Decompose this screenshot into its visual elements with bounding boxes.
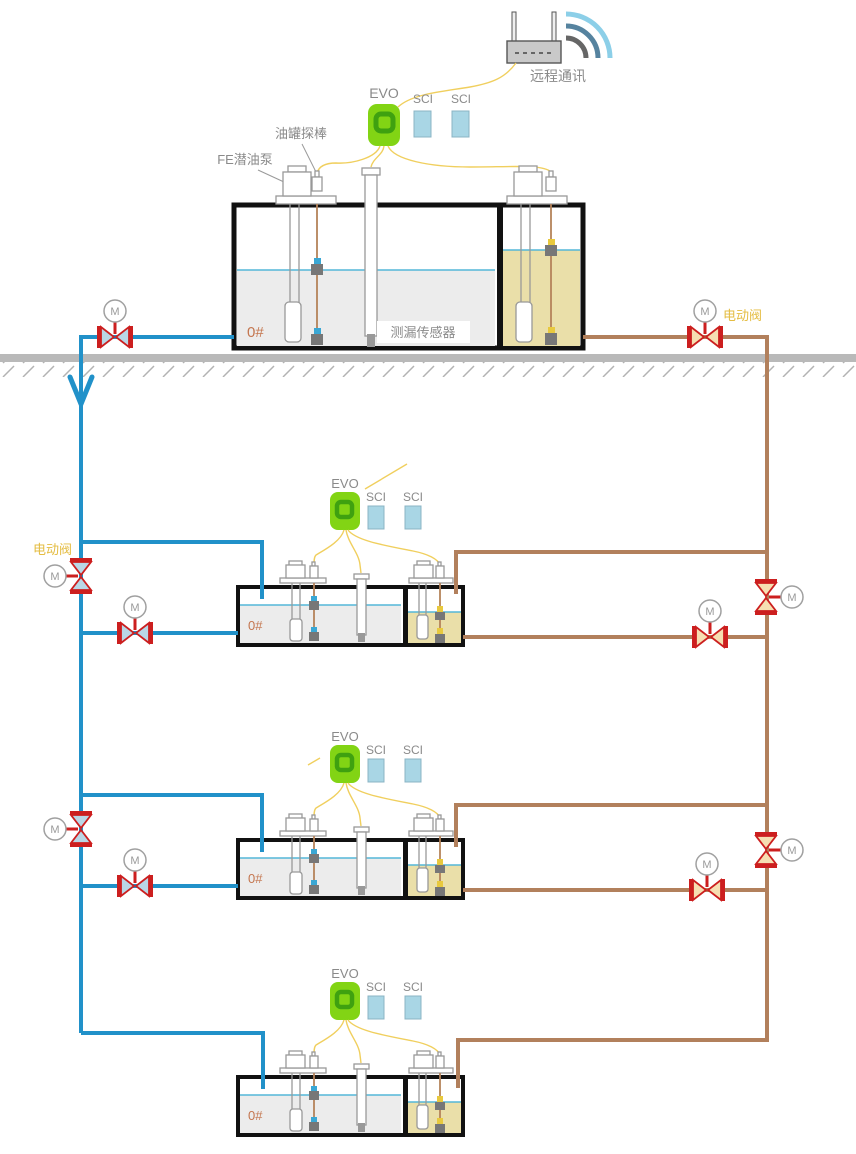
- sci-label: SCI: [451, 92, 471, 106]
- flange: [507, 196, 567, 204]
- sci-module: [452, 111, 469, 137]
- return-branch: [456, 552, 767, 594]
- probe-pin: [549, 171, 553, 177]
- motor-valve: [755, 832, 803, 868]
- float-cap: [314, 328, 321, 334]
- ground-line: [0, 354, 856, 362]
- router-antenna: [552, 12, 556, 42]
- wifi-icon: [566, 14, 610, 58]
- fe-pump-label: FE潜油泵: [217, 152, 273, 167]
- motor-valve: [97, 300, 133, 348]
- submersible-pump: [516, 302, 532, 342]
- sci-label: SCI: [413, 92, 433, 106]
- fuel-grade-label: 0#: [247, 324, 264, 341]
- tank-probe-label: 油罐探棒: [275, 126, 327, 141]
- schematic-canvas: M EVO SCI SCI: [0, 0, 856, 1154]
- pump-head: [283, 172, 311, 196]
- ground: [0, 354, 856, 377]
- tank-group-2: [238, 476, 463, 645]
- supply-branch: [81, 1033, 263, 1089]
- tank-group-3: [238, 729, 463, 898]
- flange: [276, 196, 336, 204]
- float: [545, 245, 557, 256]
- supply-piping: [70, 337, 263, 1089]
- return-trunk: [458, 337, 767, 1088]
- electric-valve-label: 电动阀: [33, 542, 72, 557]
- leak-sensor-label: 测漏传感器: [390, 325, 455, 340]
- motor-valve: [117, 849, 153, 897]
- tank-divider: [497, 205, 503, 348]
- supply-trunk: [81, 337, 234, 1033]
- motor-valve: [44, 811, 92, 847]
- comm-wire-stub: [365, 464, 407, 489]
- main-tank-group: EVO SCI SCI 油罐探棒 FE潜油泵 0# 测漏传感器: [217, 85, 583, 348]
- fuel-liquid-khaki: [503, 250, 580, 346]
- pump-head: [514, 172, 542, 196]
- signal-wire: [371, 146, 384, 167]
- electric-valve-label: 电动阀: [723, 308, 762, 323]
- motor-valve: [44, 558, 92, 594]
- comm-wire-stub: [308, 758, 320, 765]
- return-branch: [456, 805, 767, 847]
- motor-valve: [692, 600, 728, 648]
- supply-branch: [81, 542, 262, 599]
- motor-valve: [687, 300, 723, 348]
- tank-group-4: [238, 966, 463, 1135]
- sci-module: [414, 111, 431, 137]
- leak-sensor-tip: [367, 334, 375, 347]
- tank-probe-head: [312, 177, 322, 191]
- pointer-line: [258, 170, 284, 182]
- motor-valve: [689, 853, 725, 901]
- tank-probe-head: [546, 177, 556, 191]
- evo-label: EVO: [369, 85, 399, 101]
- leak-sensor-tube: [365, 175, 377, 336]
- leak-tube-cap: [362, 168, 380, 175]
- probe-pin: [315, 171, 319, 177]
- remote-comm-label: 远程通讯: [530, 68, 586, 84]
- fuel-station-schematic: M EVO SCI SCI: [0, 0, 856, 1154]
- ground-hatching: [0, 362, 856, 377]
- pump-motor-cap: [288, 166, 306, 172]
- float-cap: [548, 327, 555, 333]
- supply-branch: [81, 795, 262, 852]
- float-cap: [548, 239, 555, 245]
- motor-valve: [117, 596, 153, 644]
- float: [311, 334, 323, 345]
- router-antenna: [512, 12, 516, 42]
- return-piping: [456, 337, 767, 1088]
- motor-valve: [755, 579, 803, 615]
- submersible-pump: [285, 302, 301, 342]
- pump-motor-cap: [519, 166, 537, 172]
- float: [311, 264, 323, 275]
- float-cap: [314, 258, 321, 264]
- float: [545, 333, 557, 345]
